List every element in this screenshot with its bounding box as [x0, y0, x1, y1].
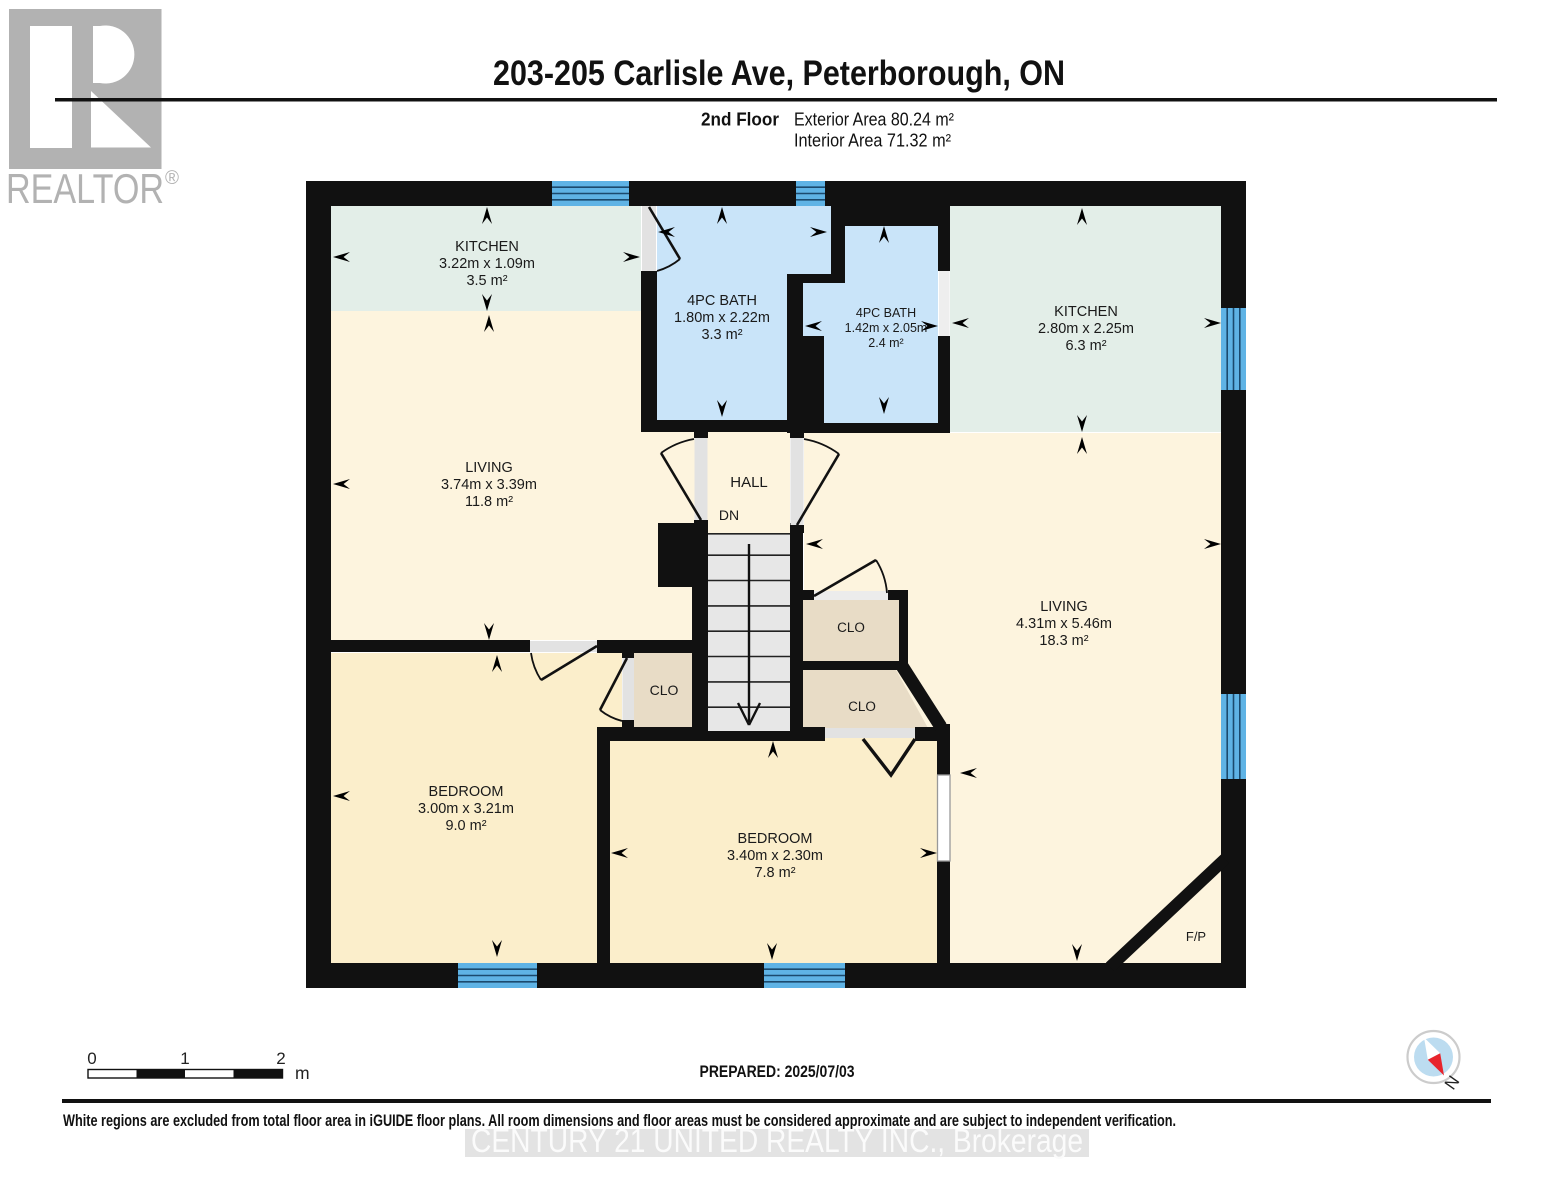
- svg-text:3.74m x 3.39m: 3.74m x 3.39m: [441, 477, 537, 493]
- svg-text:®: ®: [165, 168, 179, 189]
- svg-text:CENTURY 21 UNITED REALTY INC.,: CENTURY 21 UNITED REALTY INC., Brokerage: [471, 1122, 1083, 1159]
- svg-text:203-205 Carlisle Ave, Peterbor: 203-205 Carlisle Ave, Peterborough, ON: [493, 54, 1065, 93]
- svg-text:CLO: CLO: [837, 620, 865, 635]
- svg-text:3.3 m²: 3.3 m²: [701, 327, 742, 343]
- svg-text:4PC BATH: 4PC BATH: [856, 306, 916, 320]
- svg-text:1.80m x 2.22m: 1.80m x 2.22m: [674, 310, 770, 326]
- svg-text:BEDROOM: BEDROOM: [429, 784, 504, 800]
- svg-text:2: 2: [276, 1049, 285, 1068]
- svg-text:Exterior Area 80.24 m²: Exterior Area 80.24 m²: [794, 110, 954, 130]
- svg-text:m: m: [295, 1063, 310, 1083]
- svg-text:2.4 m²: 2.4 m²: [868, 336, 903, 350]
- svg-text:LIVING: LIVING: [465, 460, 513, 476]
- svg-text:3.22m x 1.09m: 3.22m x 1.09m: [439, 256, 535, 272]
- svg-text:LIVING: LIVING: [1040, 599, 1088, 615]
- svg-text:2nd Floor: 2nd Floor: [701, 110, 779, 130]
- svg-text:0: 0: [87, 1049, 96, 1068]
- svg-text:F/P: F/P: [1186, 929, 1206, 944]
- svg-text:HALL: HALL: [730, 474, 768, 491]
- svg-text:4.31m x 5.46m: 4.31m x 5.46m: [1016, 616, 1112, 632]
- svg-text:BEDROOM: BEDROOM: [738, 831, 813, 847]
- svg-text:DN: DN: [719, 507, 739, 523]
- svg-text:3.00m x 3.21m: 3.00m x 3.21m: [418, 801, 514, 817]
- svg-text:11.8 m²: 11.8 m²: [465, 494, 513, 510]
- svg-text:3.40m x 2.30m: 3.40m x 2.30m: [727, 848, 823, 864]
- svg-text:4PC BATH: 4PC BATH: [687, 293, 757, 309]
- svg-text:9.0 m²: 9.0 m²: [445, 818, 486, 834]
- svg-text:Interior Area 71.32 m²: Interior Area 71.32 m²: [794, 131, 951, 151]
- svg-text:2.80m x 2.25m: 2.80m x 2.25m: [1038, 321, 1134, 337]
- svg-text:1.42m x 2.05m: 1.42m x 2.05m: [845, 321, 928, 335]
- svg-text:7.8 m²: 7.8 m²: [754, 865, 795, 881]
- svg-text:1: 1: [180, 1049, 189, 1068]
- svg-text:CLO: CLO: [650, 682, 679, 698]
- svg-text:6.3 m²: 6.3 m²: [1065, 338, 1106, 354]
- svg-text:PREPARED: 2025/07/03: PREPARED: 2025/07/03: [700, 1062, 855, 1081]
- svg-text:18.3 m²: 18.3 m²: [1039, 633, 1088, 649]
- svg-text:CLO: CLO: [848, 699, 876, 714]
- svg-text:KITCHEN: KITCHEN: [1054, 304, 1118, 320]
- svg-text:KITCHEN: KITCHEN: [455, 239, 519, 255]
- svg-text:REALTOR: REALTOR: [6, 165, 164, 212]
- svg-text:3.5 m²: 3.5 m²: [466, 273, 507, 289]
